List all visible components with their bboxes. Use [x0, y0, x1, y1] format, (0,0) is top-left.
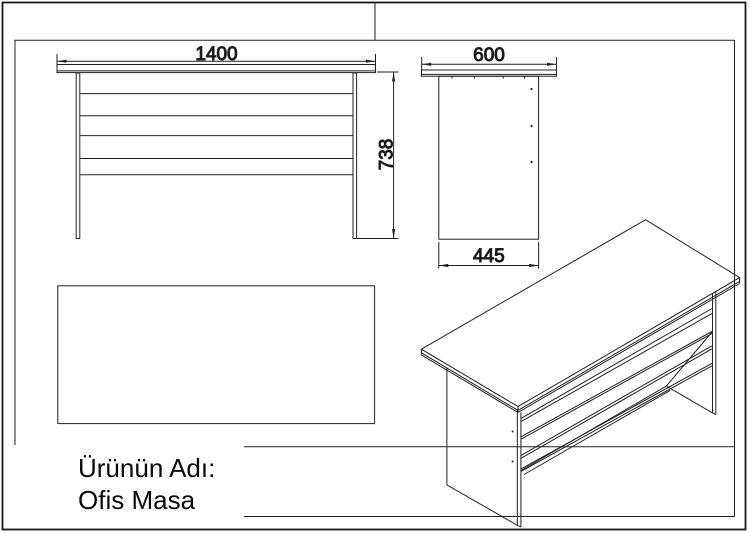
svg-text:600: 600 [473, 45, 505, 66]
svg-text:738: 738 [376, 139, 397, 171]
svg-text:445: 445 [473, 246, 505, 267]
svg-text:1400: 1400 [195, 44, 237, 65]
